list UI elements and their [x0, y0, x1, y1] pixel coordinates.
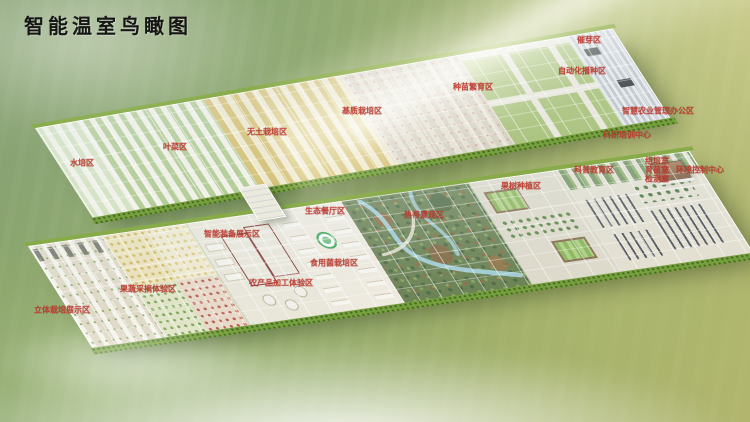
garden-bed: [484, 188, 531, 214]
zone-label-testing-room: 检测室: [645, 174, 669, 185]
zone-label-tropical: 热带景观区: [404, 210, 444, 221]
walkway-strip: [35, 121, 135, 219]
page-title: 智能温室鸟瞰图: [24, 10, 192, 39]
zone-label-processing: 农产品加工体验区: [249, 278, 313, 289]
zone-label-seedling: 种苗繁育区: [453, 82, 493, 93]
zone-label-auto-sowing: 自动化播种区: [558, 66, 606, 77]
aerial-view-scene: 水培区 叶菜区 无土栽培区 基质栽培区 种苗繁育区 催芽区 自动化播种区 立体栽…: [0, 0, 750, 422]
equipment-slab: [617, 78, 636, 88]
zone-label-education: 科普教育区: [574, 165, 614, 176]
zone-label-restaurant: 生态餐厅区: [305, 206, 345, 217]
display-table: [223, 272, 245, 282]
zone-label-admin-office: 智慧农业管理办公区: [622, 106, 694, 117]
zone-label-leafy: 叶菜区: [163, 142, 187, 153]
zone-label-orchard: 果树种植区: [501, 181, 541, 192]
equipment-slab: [584, 47, 603, 57]
display-table: [205, 242, 227, 252]
desk-rows: [651, 203, 727, 249]
zone-label-mushroom: 食用菌栽培区: [310, 258, 358, 269]
zone-label-training: 科研培训中心: [603, 130, 651, 141]
round-planter: [260, 294, 279, 307]
desk-rows: [614, 229, 668, 260]
zone-label-substrate: 基质栽培区: [342, 106, 382, 117]
zone-label-equipment: 智能装备展示区: [204, 229, 260, 240]
round-planter: [283, 299, 302, 312]
zone-label-hydroponic: 水培区: [70, 158, 94, 169]
zone-label-control: 环境控制中心: [676, 165, 724, 176]
zone-label-soilless: 无土栽培区: [247, 127, 287, 138]
desk-rows: [586, 194, 647, 228]
garden-bed: [551, 236, 598, 262]
display-table: [214, 257, 236, 267]
zone-label-germination: 催芽区: [577, 35, 601, 46]
zone-label-picking: 果蔬采摘体验区: [120, 284, 176, 295]
zone-label-vertical: 立体栽培展示区: [34, 305, 90, 316]
